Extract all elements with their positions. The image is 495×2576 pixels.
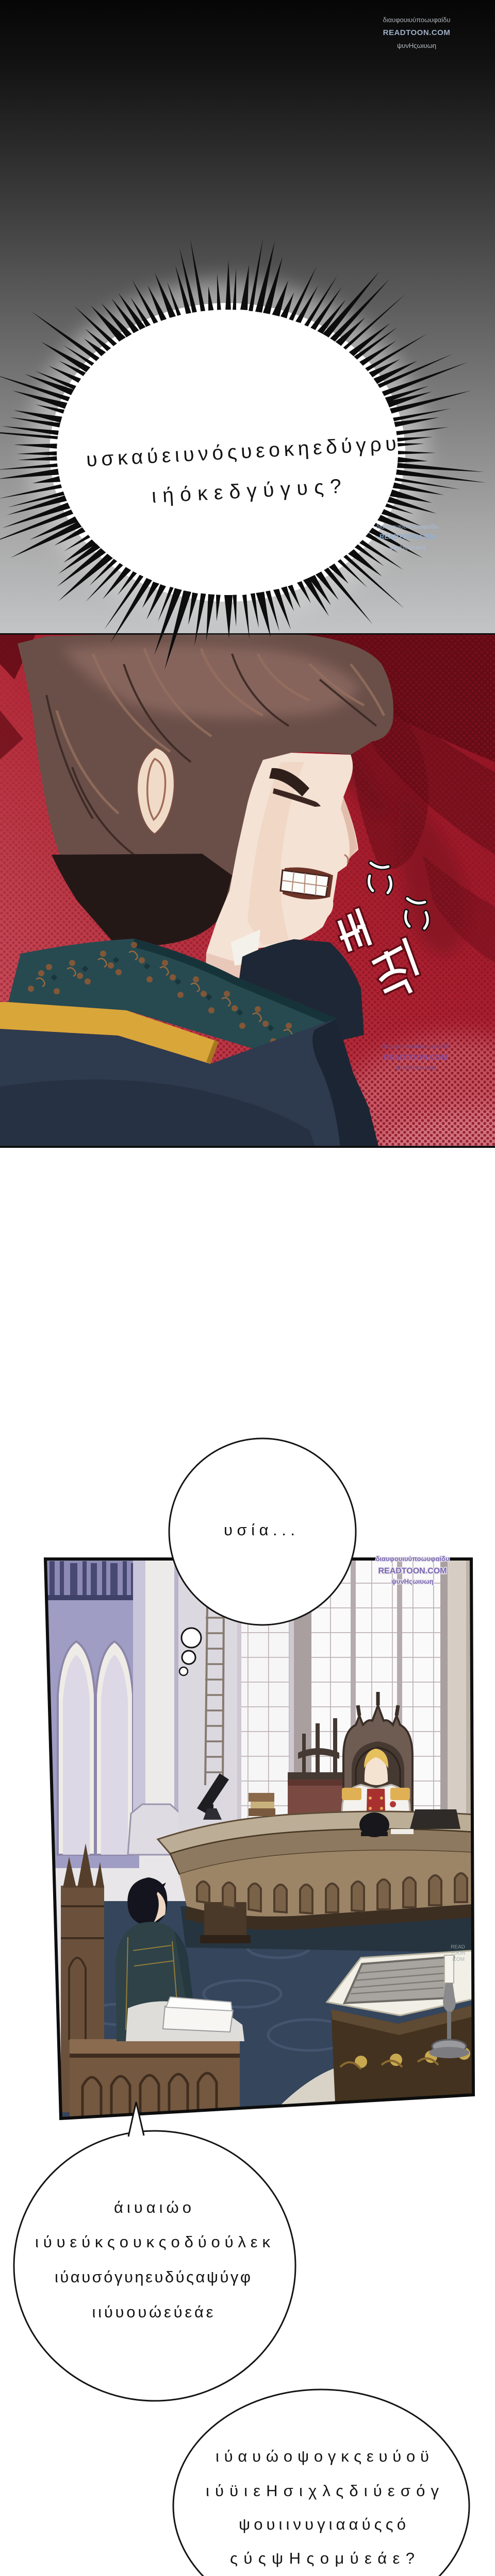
svg-text:TOON: TOON (451, 1951, 466, 1956)
svg-text:διαυφουιυύποωυφαίδυ: διαυφουιυύποωυφαίδυ (382, 1042, 449, 1050)
svg-text:READTOON.COM: READTOON.COM (378, 1567, 447, 1575)
svg-text:διαυφουιυύποωυφαίδυ: διαυφουιυύποωυφαίδυ (375, 1555, 449, 1563)
svg-text:ψυνΗςωιυωη: ψυνΗςωιυωη (396, 1063, 435, 1071)
svg-text:ψυνΗςωιυωη: ψυνΗςωιυωη (391, 1578, 434, 1585)
svg-text:READTOON.COM: READTOON.COM (384, 1053, 448, 1062)
svg-text:ιιύυουώεύεάε: ιιύυουώεύεάε (92, 2303, 213, 2321)
svg-text:READ: READ (451, 1944, 465, 1950)
svg-text:.COM: .COM (451, 1957, 465, 1962)
